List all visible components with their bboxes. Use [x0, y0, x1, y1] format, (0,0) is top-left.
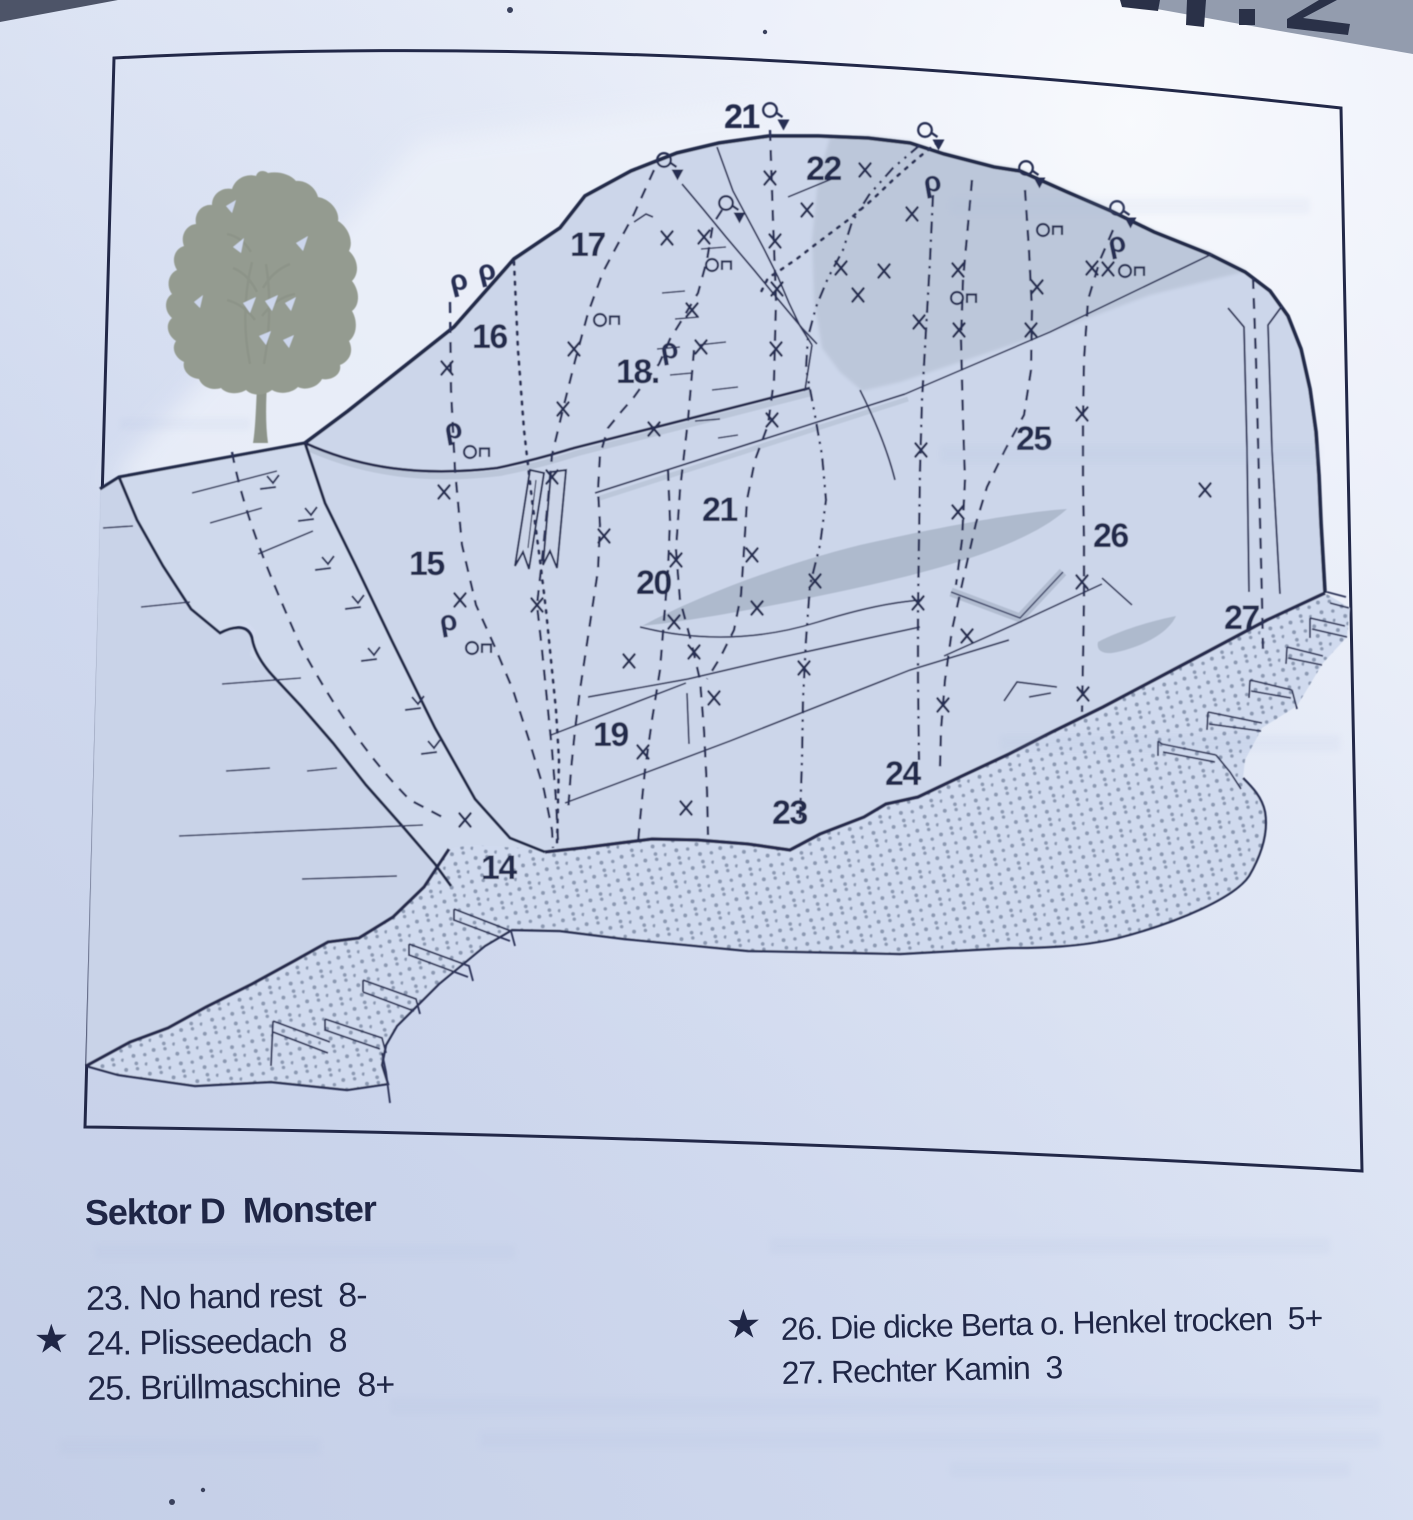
- svg-text:14: 14: [481, 849, 517, 887]
- svg-text:15: 15: [409, 545, 444, 583]
- svg-text:23. No hand rest 8-: 23. No hand rest 8-: [86, 1276, 367, 1318]
- svg-text:24. Plisseedach 8: 24. Plisseedach 8: [86, 1321, 346, 1363]
- svg-text:17: 17: [570, 226, 605, 264]
- svg-text:19: 19: [593, 716, 628, 754]
- svg-text:27: 27: [1224, 599, 1259, 637]
- svg-text:Sektor D Monster: Sektor D Monster: [85, 1188, 378, 1233]
- svg-text:25. Brüllmaschine 8+: 25. Brüllmaschine 8+: [87, 1366, 395, 1408]
- svg-text:22: 22: [806, 150, 841, 188]
- svg-text:23: 23: [772, 794, 807, 832]
- svg-text:★: ★: [33, 1317, 69, 1361]
- svg-text:27. Rechter Kamin 3: 27. Rechter Kamin 3: [781, 1349, 1062, 1391]
- svg-text:18.: 18.: [616, 353, 659, 391]
- svg-text:21: 21: [724, 98, 759, 136]
- svg-text:24: 24: [885, 755, 921, 793]
- svg-text:20: 20: [636, 564, 671, 602]
- svg-text:16: 16: [472, 318, 507, 356]
- svg-text:★: ★: [725, 1302, 762, 1347]
- svg-text:26: 26: [1093, 517, 1128, 555]
- svg-text:21: 21: [702, 491, 737, 529]
